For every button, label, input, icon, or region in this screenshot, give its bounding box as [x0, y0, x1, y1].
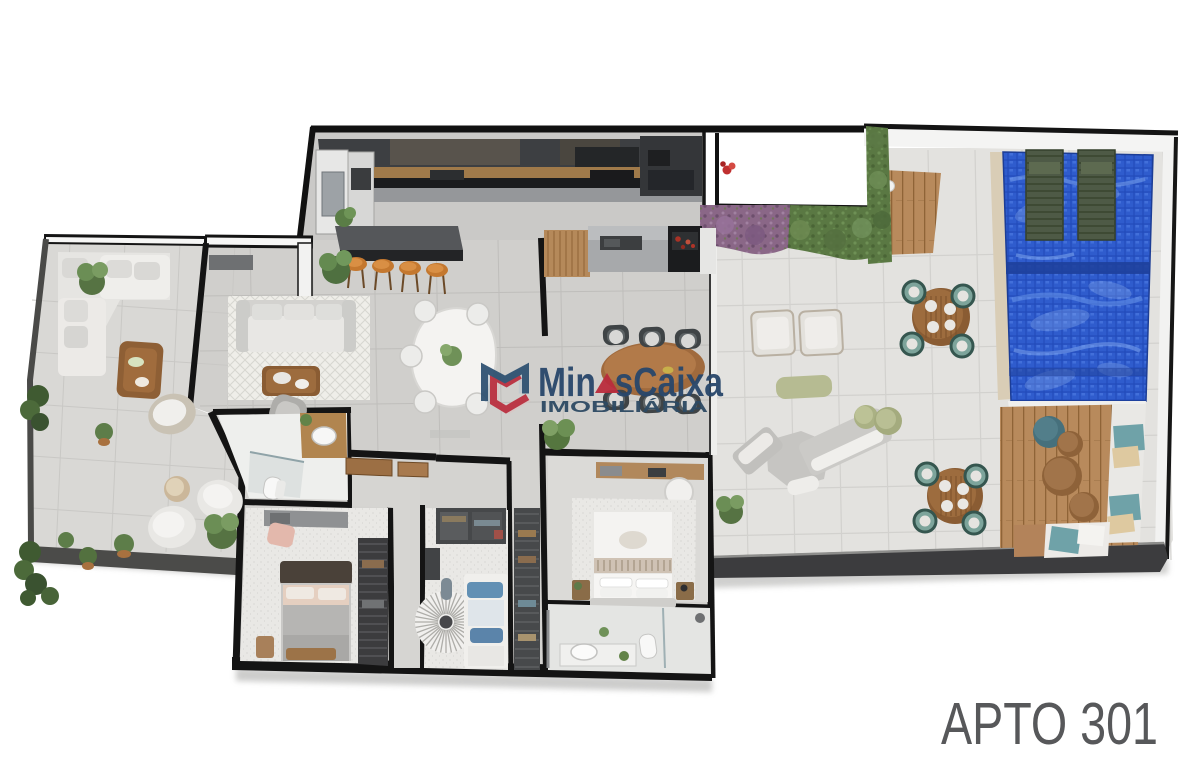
svg-text:IMOBILIÁRIA: IMOBILIÁRIA [540, 399, 708, 416]
svg-text:APTO 301: APTO 301 [941, 691, 1158, 757]
